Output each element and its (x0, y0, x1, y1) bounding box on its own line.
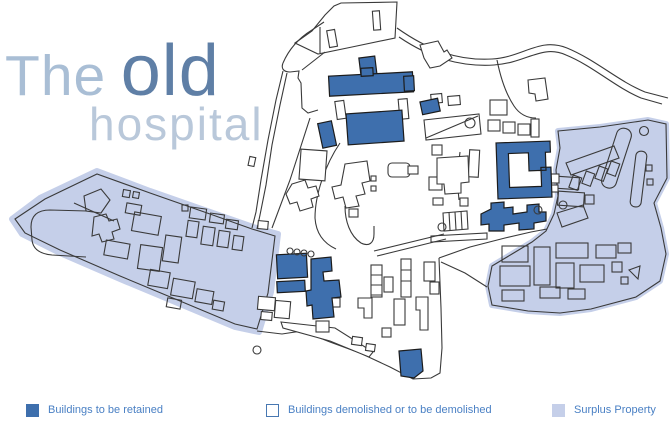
legend-item-demolished: Buildings demolished or to be demolished (266, 401, 492, 419)
title-word-hospital: hospital (89, 101, 264, 147)
old-hospital-site-plan: The old hospital Buildings to be retaine… (0, 0, 670, 431)
retained-swatch-icon (26, 404, 39, 417)
legend-label: Buildings demolished or to be demolished (288, 404, 492, 416)
legend-label: Surplus Property (574, 404, 656, 416)
legend-item-surplus: Surplus Property (552, 401, 656, 419)
legend-label: Buildings to be retained (48, 404, 163, 416)
surplus-swatch-icon (552, 404, 565, 417)
page-title: The old (5, 35, 220, 107)
demolished-swatch-icon (266, 404, 279, 417)
legend-item-retained: Buildings to be retained (26, 401, 163, 419)
